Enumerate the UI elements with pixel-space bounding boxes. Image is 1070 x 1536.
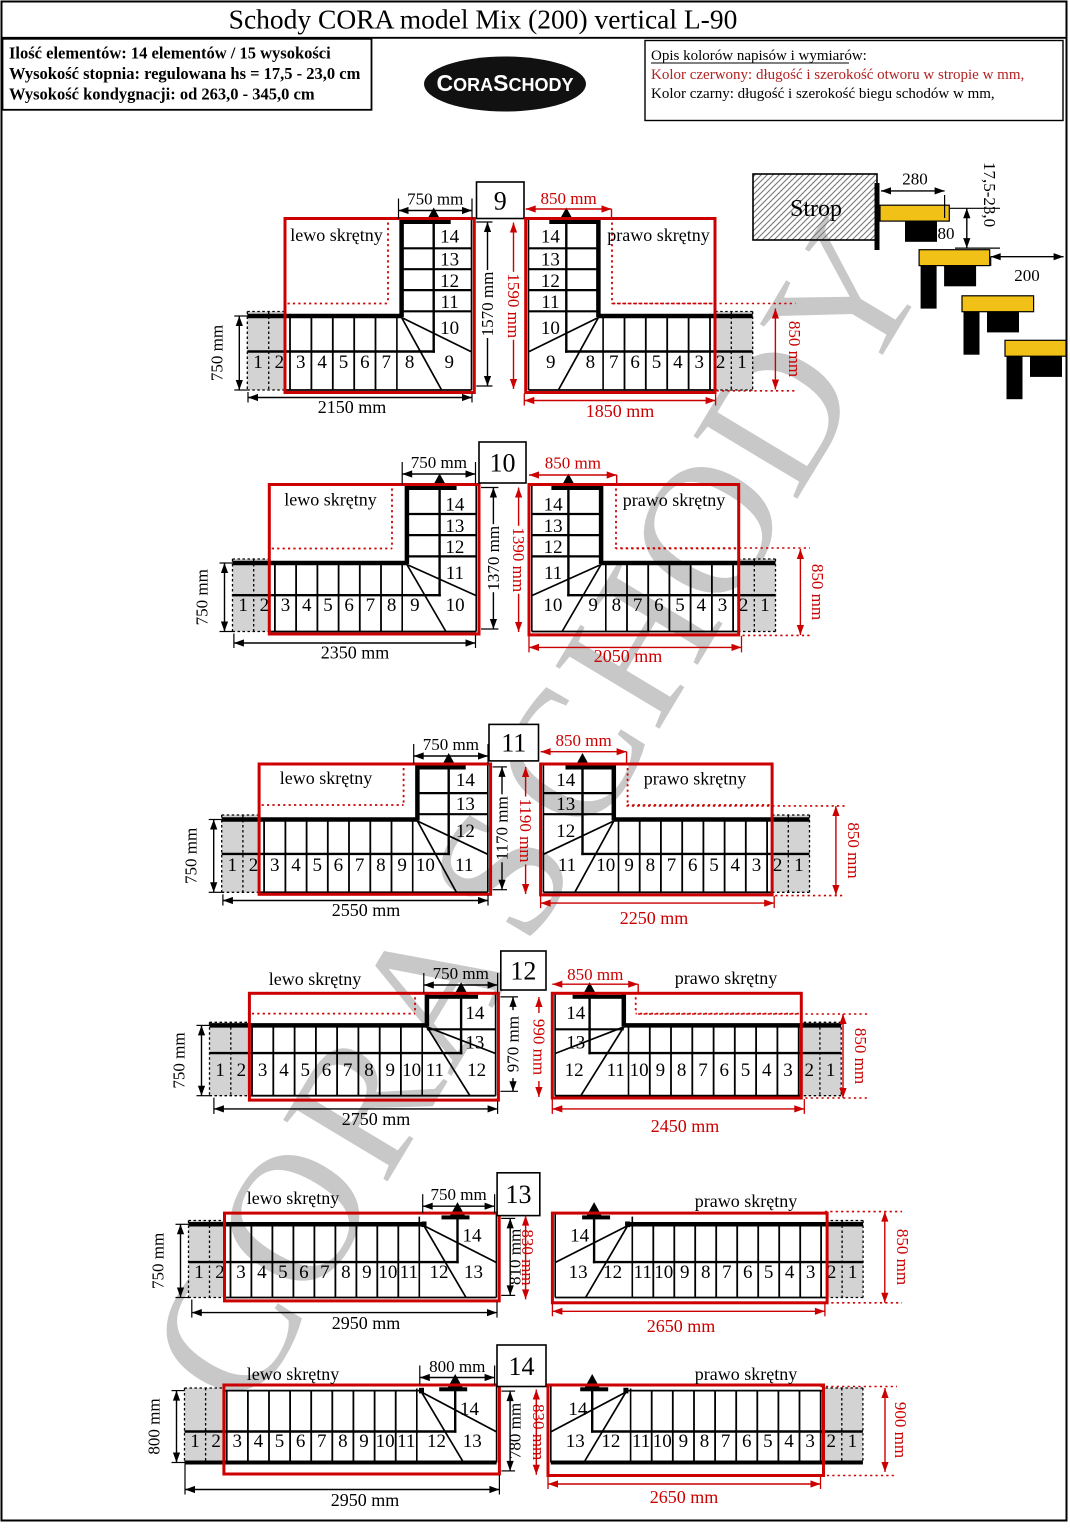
svg-text:4: 4 — [254, 1431, 264, 1452]
svg-text:8: 8 — [612, 595, 622, 616]
svg-text:12: 12 — [603, 1262, 622, 1283]
svg-text:5: 5 — [764, 1262, 774, 1283]
svg-text:lewo skrętny: lewo skrętny — [247, 1188, 339, 1208]
svg-text:12: 12 — [556, 821, 575, 842]
svg-text:750 mm: 750 mm — [407, 190, 463, 209]
svg-text:4: 4 — [317, 352, 327, 373]
svg-text:lewo skrętny: lewo skrętny — [284, 490, 376, 510]
svg-text:6: 6 — [344, 595, 354, 616]
svg-text:1: 1 — [737, 352, 747, 373]
svg-text:11: 11 — [632, 1431, 650, 1452]
svg-text:750 mm: 750 mm — [433, 964, 489, 983]
svg-text:2650 mm: 2650 mm — [650, 1487, 719, 1507]
svg-text:2650 mm: 2650 mm — [647, 1316, 716, 1336]
svg-text:8: 8 — [341, 1262, 351, 1283]
svg-text:10: 10 — [653, 1431, 672, 1452]
svg-text:4: 4 — [697, 595, 707, 616]
svg-text:9: 9 — [680, 1262, 690, 1283]
svg-text:850 mm: 850 mm — [851, 1028, 870, 1084]
svg-text:4: 4 — [673, 352, 683, 373]
svg-text:8: 8 — [338, 1431, 348, 1452]
svg-text:1190 mm: 1190 mm — [516, 798, 535, 862]
svg-text:2: 2 — [739, 595, 749, 616]
svg-text:11: 11 — [541, 292, 559, 313]
svg-text:6: 6 — [360, 352, 370, 373]
svg-text:7: 7 — [721, 1431, 731, 1452]
svg-text:5: 5 — [275, 1431, 285, 1452]
svg-text:10: 10 — [402, 1060, 421, 1081]
svg-text:12: 12 — [427, 1431, 446, 1452]
svg-text:7: 7 — [381, 352, 391, 373]
svg-text:850 mm: 850 mm — [808, 564, 827, 620]
svg-text:7: 7 — [633, 595, 643, 616]
svg-text:11: 11 — [634, 1262, 652, 1283]
svg-text:1: 1 — [228, 855, 238, 876]
svg-text:11: 11 — [400, 1262, 418, 1283]
svg-text:3: 3 — [718, 595, 728, 616]
svg-text:5: 5 — [323, 595, 333, 616]
svg-text:5: 5 — [741, 1060, 751, 1081]
svg-text:11: 11 — [446, 563, 464, 584]
svg-text:4: 4 — [279, 1060, 289, 1081]
svg-text:6: 6 — [688, 855, 698, 876]
svg-text:9: 9 — [679, 1431, 689, 1452]
svg-text:Ilość elementów: 14 elementów: Ilość elementów: 14 elementów / 15 wysok… — [9, 44, 331, 63]
svg-text:11: 11 — [426, 1060, 444, 1081]
svg-text:850 mm: 850 mm — [567, 965, 623, 984]
svg-text:14: 14 — [544, 495, 564, 516]
svg-text:9: 9 — [397, 855, 407, 876]
svg-text:12: 12 — [510, 957, 536, 986]
svg-text:2350 mm: 2350 mm — [321, 643, 390, 663]
svg-text:13: 13 — [566, 1033, 585, 1054]
svg-text:12: 12 — [440, 271, 459, 292]
svg-text:2250 mm: 2250 mm — [620, 908, 689, 928]
svg-text:lewo skrętny: lewo skrętny — [290, 225, 382, 245]
svg-text:13: 13 — [505, 1180, 531, 1209]
svg-text:280: 280 — [902, 170, 928, 189]
svg-text:1370 mm: 1370 mm — [484, 526, 503, 591]
svg-text:4: 4 — [785, 1262, 795, 1283]
svg-text:750 mm: 750 mm — [431, 1185, 487, 1204]
svg-text:3: 3 — [236, 1262, 246, 1283]
svg-text:14: 14 — [541, 227, 561, 248]
svg-text:9: 9 — [359, 1431, 369, 1452]
svg-text:5: 5 — [312, 855, 322, 876]
svg-text:9: 9 — [546, 352, 556, 373]
svg-text:12: 12 — [601, 1431, 620, 1452]
svg-text:9: 9 — [410, 595, 420, 616]
svg-text:10: 10 — [440, 318, 459, 339]
svg-text:13: 13 — [464, 1262, 483, 1283]
svg-text:9: 9 — [444, 352, 454, 373]
svg-text:750 mm: 750 mm — [182, 828, 201, 884]
svg-text:6: 6 — [743, 1262, 753, 1283]
svg-text:Wysokość stopnia: regulowana: Wysokość stopnia: regulowana hs = 17,5 -… — [9, 64, 361, 83]
svg-text:850 mm: 850 mm — [545, 454, 601, 473]
svg-text:8: 8 — [405, 352, 415, 373]
svg-text:1850 mm: 1850 mm — [586, 401, 655, 421]
svg-text:5: 5 — [709, 855, 719, 876]
svg-text:12: 12 — [456, 821, 475, 842]
svg-text:13: 13 — [456, 794, 475, 815]
svg-text:Kolor czerwony: długość i szer: Kolor czerwony: długość i szerokość otwo… — [651, 67, 1024, 83]
svg-text:13: 13 — [566, 1431, 585, 1452]
svg-text:850 mm: 850 mm — [893, 1229, 912, 1285]
svg-text:5: 5 — [278, 1262, 288, 1283]
svg-text:7: 7 — [320, 1262, 330, 1283]
svg-text:12: 12 — [445, 537, 464, 558]
svg-text:970 mm: 970 mm — [504, 1016, 523, 1072]
svg-text:2: 2 — [211, 1431, 221, 1452]
svg-text:9: 9 — [588, 595, 598, 616]
svg-text:6: 6 — [654, 595, 664, 616]
svg-text:6: 6 — [742, 1431, 752, 1452]
svg-text:14: 14 — [566, 1003, 586, 1024]
svg-text:10: 10 — [630, 1060, 649, 1081]
svg-text:10: 10 — [416, 855, 435, 876]
svg-text:13: 13 — [544, 516, 563, 537]
svg-text:12: 12 — [430, 1262, 449, 1283]
svg-text:9: 9 — [656, 1060, 666, 1081]
svg-text:4: 4 — [302, 595, 312, 616]
svg-text:8: 8 — [364, 1060, 374, 1081]
svg-text:11: 11 — [455, 855, 473, 876]
svg-text:6: 6 — [296, 1431, 306, 1452]
svg-text:10: 10 — [596, 855, 615, 876]
svg-text:3: 3 — [258, 1060, 268, 1081]
svg-text:1: 1 — [794, 855, 804, 876]
svg-text:4: 4 — [291, 855, 301, 876]
svg-text:lewo skrętny: lewo skrętny — [280, 768, 372, 788]
svg-text:1: 1 — [215, 1060, 225, 1081]
svg-text:13: 13 — [556, 794, 575, 815]
svg-text:2950 mm: 2950 mm — [331, 1490, 400, 1510]
svg-text:830 mm: 830 mm — [518, 1229, 537, 1285]
svg-text:Schody CORA model Mix (200) ve: Schody CORA model Mix (200) vertical L-9… — [229, 4, 738, 35]
svg-text:prawo skrętny: prawo skrętny — [695, 1191, 797, 1211]
svg-text:10: 10 — [543, 595, 562, 616]
svg-text:11: 11 — [397, 1431, 415, 1452]
svg-text:900 mm: 900 mm — [891, 1402, 910, 1458]
svg-text:2450 mm: 2450 mm — [651, 1116, 720, 1136]
svg-text:2: 2 — [260, 595, 270, 616]
svg-text:1390 mm: 1390 mm — [509, 527, 528, 592]
svg-text:14: 14 — [465, 1003, 485, 1024]
svg-text:13: 13 — [463, 1431, 482, 1452]
svg-text:1170 mm: 1170 mm — [493, 796, 512, 860]
svg-text:11: 11 — [440, 292, 458, 313]
svg-text:850 mm: 850 mm — [540, 189, 596, 208]
svg-text:8: 8 — [646, 855, 656, 876]
svg-text:9: 9 — [494, 186, 507, 215]
svg-text:14: 14 — [440, 227, 460, 248]
svg-text:1: 1 — [826, 1060, 836, 1081]
svg-text:14: 14 — [570, 1226, 590, 1247]
svg-text:12: 12 — [467, 1060, 486, 1081]
svg-text:1: 1 — [190, 1431, 200, 1452]
svg-text:prawo skrętny: prawo skrętny — [644, 769, 746, 789]
svg-text:12: 12 — [544, 537, 563, 558]
svg-text:7: 7 — [343, 1060, 353, 1081]
svg-text:7: 7 — [667, 855, 677, 876]
svg-text:prawo skrętny: prawo skrętny — [695, 1364, 797, 1384]
svg-text:2: 2 — [275, 352, 285, 373]
svg-text:1: 1 — [194, 1262, 204, 1283]
svg-text:3: 3 — [270, 855, 280, 876]
svg-text:1: 1 — [848, 1431, 858, 1452]
svg-text:780 mm: 780 mm — [506, 1403, 525, 1459]
svg-text:8: 8 — [700, 1431, 710, 1452]
svg-text:13: 13 — [541, 250, 560, 271]
svg-text:3: 3 — [805, 1431, 815, 1452]
svg-text:13: 13 — [445, 516, 464, 537]
svg-text:12: 12 — [541, 271, 560, 292]
svg-text:10: 10 — [654, 1262, 673, 1283]
svg-text:11: 11 — [607, 1060, 625, 1081]
svg-text:2: 2 — [237, 1060, 247, 1081]
svg-text:7: 7 — [609, 352, 619, 373]
svg-text:7: 7 — [698, 1060, 708, 1081]
svg-text:5: 5 — [652, 352, 662, 373]
svg-text:3: 3 — [695, 352, 705, 373]
svg-text:11: 11 — [558, 855, 576, 876]
svg-text:prawo skrętny: prawo skrętny — [607, 225, 709, 245]
svg-text:990 mm: 990 mm — [529, 1019, 548, 1075]
svg-text:10: 10 — [490, 449, 516, 478]
svg-text:14: 14 — [509, 1352, 535, 1381]
svg-text:5: 5 — [300, 1060, 310, 1081]
svg-text:1: 1 — [238, 595, 248, 616]
svg-text:80: 80 — [938, 224, 955, 243]
svg-text:9: 9 — [624, 855, 634, 876]
svg-text:14: 14 — [463, 1226, 483, 1247]
svg-text:8: 8 — [701, 1262, 711, 1283]
svg-text:5: 5 — [763, 1431, 773, 1452]
svg-text:2750 mm: 2750 mm — [342, 1109, 411, 1129]
svg-text:Opis kolorów napisów i wymiaró: Opis kolorów napisów i wymiarów: — [651, 48, 867, 64]
svg-text:750 mm: 750 mm — [423, 735, 479, 754]
svg-text:2: 2 — [716, 352, 726, 373]
svg-text:1: 1 — [760, 595, 770, 616]
svg-text:4: 4 — [257, 1262, 267, 1283]
svg-text:14: 14 — [460, 1399, 480, 1420]
svg-text:6: 6 — [299, 1262, 309, 1283]
svg-text:2: 2 — [773, 855, 783, 876]
svg-text:4: 4 — [730, 855, 740, 876]
svg-text:6: 6 — [630, 352, 640, 373]
svg-text:8: 8 — [586, 352, 596, 373]
svg-text:10: 10 — [376, 1431, 395, 1452]
svg-text:6: 6 — [719, 1060, 729, 1081]
svg-text:Wysokość kondygnacji: od 263,0: Wysokość kondygnacji: od 263,0 - 345,0 c… — [9, 85, 315, 104]
svg-text:Kolor czarny: długość i szerok: Kolor czarny: długość i szerokość biegu … — [651, 86, 995, 102]
svg-text:1590 mm: 1590 mm — [504, 273, 523, 338]
svg-text:14: 14 — [456, 770, 476, 791]
svg-text:1570 mm: 1570 mm — [478, 272, 497, 337]
svg-text:11: 11 — [544, 563, 562, 584]
svg-text:3: 3 — [281, 595, 291, 616]
svg-text:Strop: Strop — [790, 196, 842, 222]
svg-text:14: 14 — [568, 1399, 588, 1420]
svg-text:2550 mm: 2550 mm — [332, 900, 401, 920]
svg-text:lewo skrętny: lewo skrętny — [269, 969, 361, 989]
svg-text:prawo skrętny: prawo skrętny — [675, 968, 777, 988]
svg-text:850 mm: 850 mm — [785, 321, 804, 377]
svg-text:3: 3 — [783, 1060, 793, 1081]
svg-text:800 mm: 800 mm — [429, 1357, 485, 1376]
svg-text:750 mm: 750 mm — [149, 1233, 168, 1289]
svg-text:7: 7 — [722, 1262, 732, 1283]
svg-text:6: 6 — [322, 1060, 332, 1081]
svg-text:200: 200 — [1014, 266, 1040, 285]
svg-text:17,5-23,0: 17,5-23,0 — [980, 162, 999, 227]
svg-text:4: 4 — [762, 1060, 772, 1081]
svg-text:10: 10 — [541, 318, 560, 339]
svg-text:5: 5 — [339, 352, 349, 373]
svg-text:8: 8 — [387, 595, 397, 616]
svg-text:4: 4 — [784, 1431, 794, 1452]
svg-text:2050 mm: 2050 mm — [594, 646, 663, 666]
svg-text:8: 8 — [677, 1060, 687, 1081]
svg-text:3: 3 — [806, 1262, 816, 1283]
svg-text:prawo skrętny: prawo skrętny — [623, 490, 725, 510]
svg-text:10: 10 — [378, 1262, 397, 1283]
svg-text:750 mm: 750 mm — [170, 1032, 189, 1088]
svg-text:11: 11 — [501, 729, 526, 758]
svg-text:2: 2 — [249, 855, 259, 876]
svg-text:3: 3 — [752, 855, 762, 876]
svg-text:2950 mm: 2950 mm — [332, 1313, 401, 1333]
svg-text:7: 7 — [317, 1431, 327, 1452]
svg-text:13: 13 — [440, 250, 459, 271]
svg-text:2150 mm: 2150 mm — [318, 397, 387, 417]
svg-text:9: 9 — [362, 1262, 372, 1283]
svg-text:6: 6 — [334, 855, 344, 876]
svg-text:14: 14 — [556, 770, 576, 791]
svg-text:7: 7 — [355, 855, 365, 876]
svg-text:3: 3 — [233, 1431, 243, 1452]
svg-text:850 mm: 850 mm — [555, 731, 611, 750]
svg-text:2: 2 — [826, 1431, 836, 1452]
svg-text:750 mm: 750 mm — [193, 569, 212, 625]
svg-text:1: 1 — [848, 1262, 858, 1283]
svg-text:8: 8 — [376, 855, 386, 876]
svg-text:13: 13 — [465, 1033, 484, 1054]
svg-text:2: 2 — [805, 1060, 815, 1081]
svg-text:750 mm: 750 mm — [411, 453, 467, 472]
svg-text:lewo skrętny: lewo skrętny — [247, 1364, 339, 1384]
svg-text:750 mm: 750 mm — [207, 325, 226, 381]
svg-text:800 mm: 800 mm — [145, 1398, 164, 1454]
svg-text:830 mm: 830 mm — [529, 1404, 548, 1460]
svg-text:3: 3 — [296, 352, 306, 373]
svg-text:850 mm: 850 mm — [844, 822, 863, 878]
svg-text:7: 7 — [366, 595, 376, 616]
svg-text:9: 9 — [386, 1060, 396, 1081]
svg-text:10: 10 — [446, 595, 465, 616]
svg-text:1: 1 — [253, 352, 263, 373]
svg-text:13: 13 — [569, 1262, 588, 1283]
svg-text:5: 5 — [675, 595, 685, 616]
svg-text:12: 12 — [565, 1060, 584, 1081]
svg-text:14: 14 — [445, 495, 465, 516]
